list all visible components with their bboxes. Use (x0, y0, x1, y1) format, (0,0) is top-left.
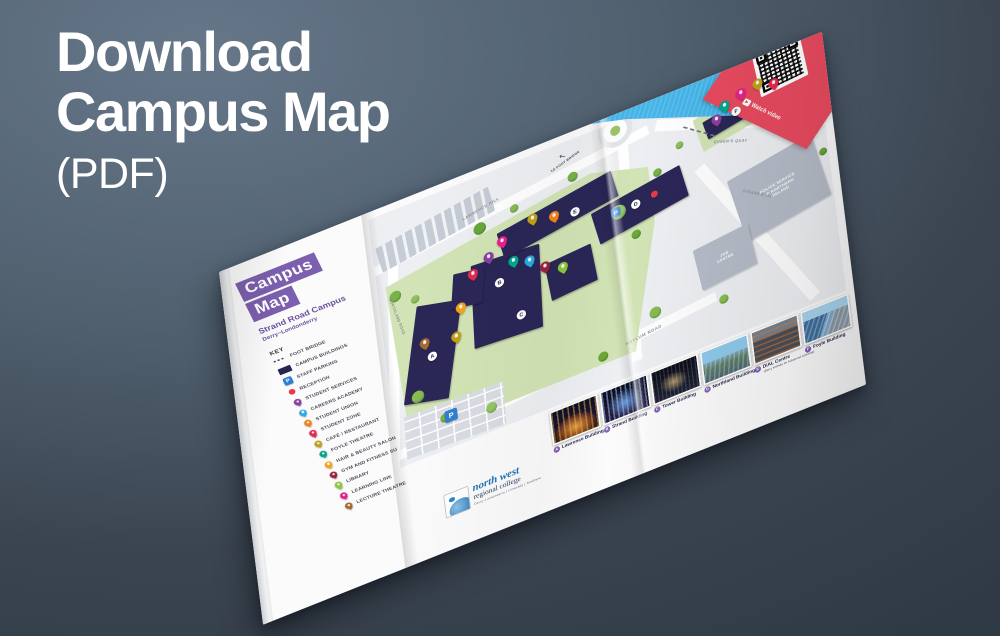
photo-letter-badge: A (553, 445, 560, 453)
tree-icon (649, 305, 662, 320)
legend-pin-icon (318, 450, 328, 458)
road-label: QUEEN'S QUAY (713, 138, 748, 144)
download-campus-map-link[interactable]: Download Campus Map (PDF) (56, 22, 390, 199)
legend-pin-icon (298, 408, 308, 416)
headline-pdf-label: (PDF) (56, 150, 390, 199)
legend-pin-icon (303, 419, 313, 427)
page-background: { "headline": { "line1": "Download", "li… (0, 0, 1000, 636)
legend-pin-icon (323, 460, 333, 468)
headline-line1: Download (56, 22, 390, 82)
headline-line2: Campus Map (56, 82, 390, 142)
photo-letter-badge: E (754, 365, 761, 373)
legend-pin-icon (334, 481, 344, 489)
legend-pin-icon (293, 398, 303, 406)
watch-video-ribbon[interactable]: ▶ Watch video (742, 97, 783, 121)
legend-pin-icon (329, 470, 339, 478)
photo-letter-badge: F (805, 345, 812, 353)
legend-reception-dot-icon (288, 388, 297, 396)
legend-footbridge-dash-icon (273, 357, 285, 363)
building-job-centre: JOB CENTRE (693, 223, 758, 290)
legend-pin-icon (313, 439, 323, 447)
legend-pin-icon (344, 502, 354, 510)
watch-video-label: Watch video (750, 101, 783, 121)
legend-pin-icon (308, 429, 318, 437)
photo-letter-badge: B (604, 425, 611, 433)
tree-icon (819, 146, 828, 156)
nwrc-logo-icon (443, 486, 471, 519)
photo-letter-badge: C (654, 405, 661, 413)
legend-pin-icon (339, 491, 349, 499)
tree-icon (719, 293, 729, 305)
photo-letter-badge: D (704, 385, 711, 393)
nwrc-logo-text: north west regional college Derry~London… (472, 458, 541, 506)
tree-icon (675, 140, 684, 150)
